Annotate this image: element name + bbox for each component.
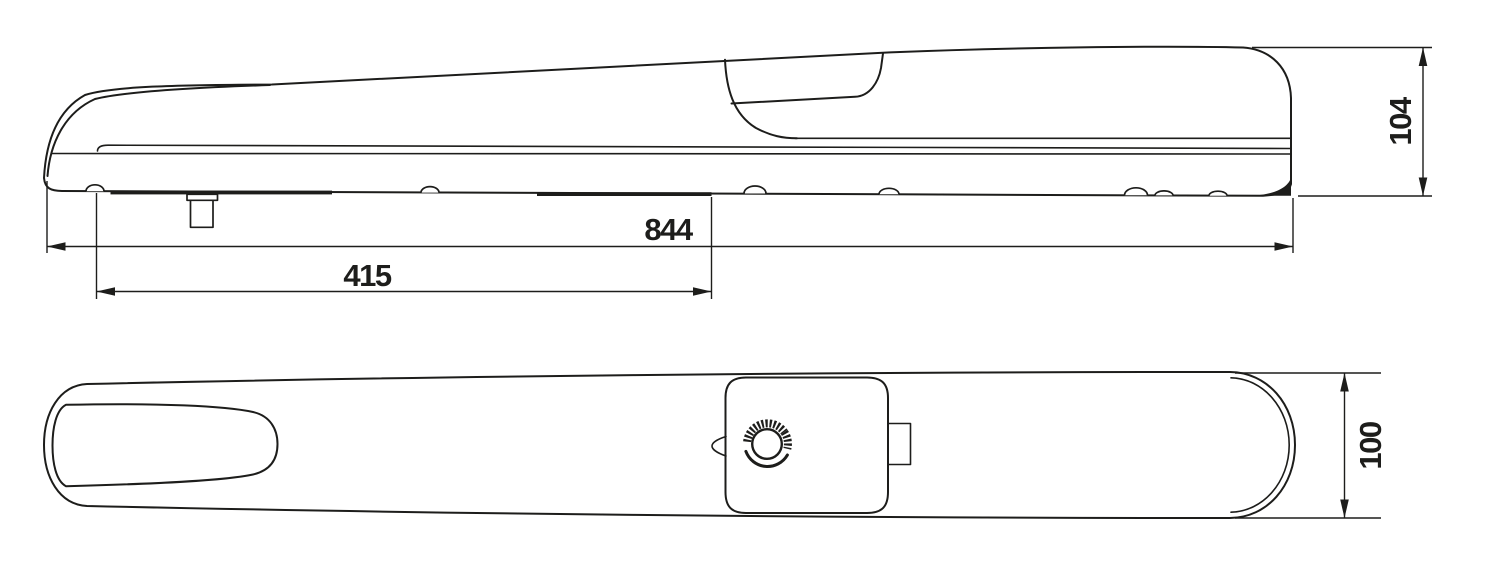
release-cover: [726, 378, 889, 514]
release-lever-recess: [725, 60, 797, 139]
bump: [421, 187, 439, 193]
mounting-pin: [187, 194, 218, 227]
dimension-top-width: 100: [1235, 373, 1388, 518]
arrowhead-down: [1340, 500, 1349, 519]
bump: [1125, 188, 1148, 196]
mounting-pin-flange: [187, 194, 218, 200]
arrowhead-right: [693, 287, 712, 296]
release-knob-icon: [746, 423, 788, 466]
dimension-label-top-width: 100: [1353, 422, 1388, 469]
dimension-label-side-height: 104: [1383, 96, 1418, 145]
bump: [1155, 191, 1173, 196]
bump: [86, 185, 104, 191]
side-view: 844 415 104: [44, 47, 1432, 299]
arrowhead-right: [1275, 242, 1294, 251]
release-lever: [732, 54, 884, 104]
arrowhead-up: [1340, 373, 1349, 392]
bump: [879, 188, 899, 194]
bump: [744, 186, 766, 193]
release-cover-tab: [888, 424, 911, 465]
mounting-pin-body: [191, 200, 214, 227]
dimension-label-overall-length: 844: [644, 212, 693, 247]
arrowhead-up: [1419, 48, 1428, 67]
dimension-label-front-mount-distance: 415: [343, 258, 391, 293]
seal-strip-front: [111, 191, 333, 195]
front-cap-top-contour: [53, 404, 278, 486]
top-view: 100: [44, 372, 1388, 518]
side-view-body-outline: [44, 47, 1291, 196]
arrowhead-down: [1419, 178, 1428, 197]
knob-knurled-ring-2: [784, 432, 788, 449]
parting-line-upper: [98, 145, 1292, 151]
knob-core: [752, 429, 782, 459]
bump: [1209, 191, 1227, 196]
seal-strip-rear: [537, 192, 712, 196]
dimension-side-height: 104: [1252, 48, 1432, 197]
release-cover-latch: [712, 437, 726, 457]
arrowhead-left: [97, 287, 116, 296]
parting-line-lower: [52, 154, 1291, 155]
technical-drawing: 844 415 104: [0, 0, 1500, 573]
top-view-body-outline: [44, 372, 1295, 518]
arrowhead-left: [47, 242, 66, 251]
rear-corner-fillet: [1250, 178, 1291, 196]
